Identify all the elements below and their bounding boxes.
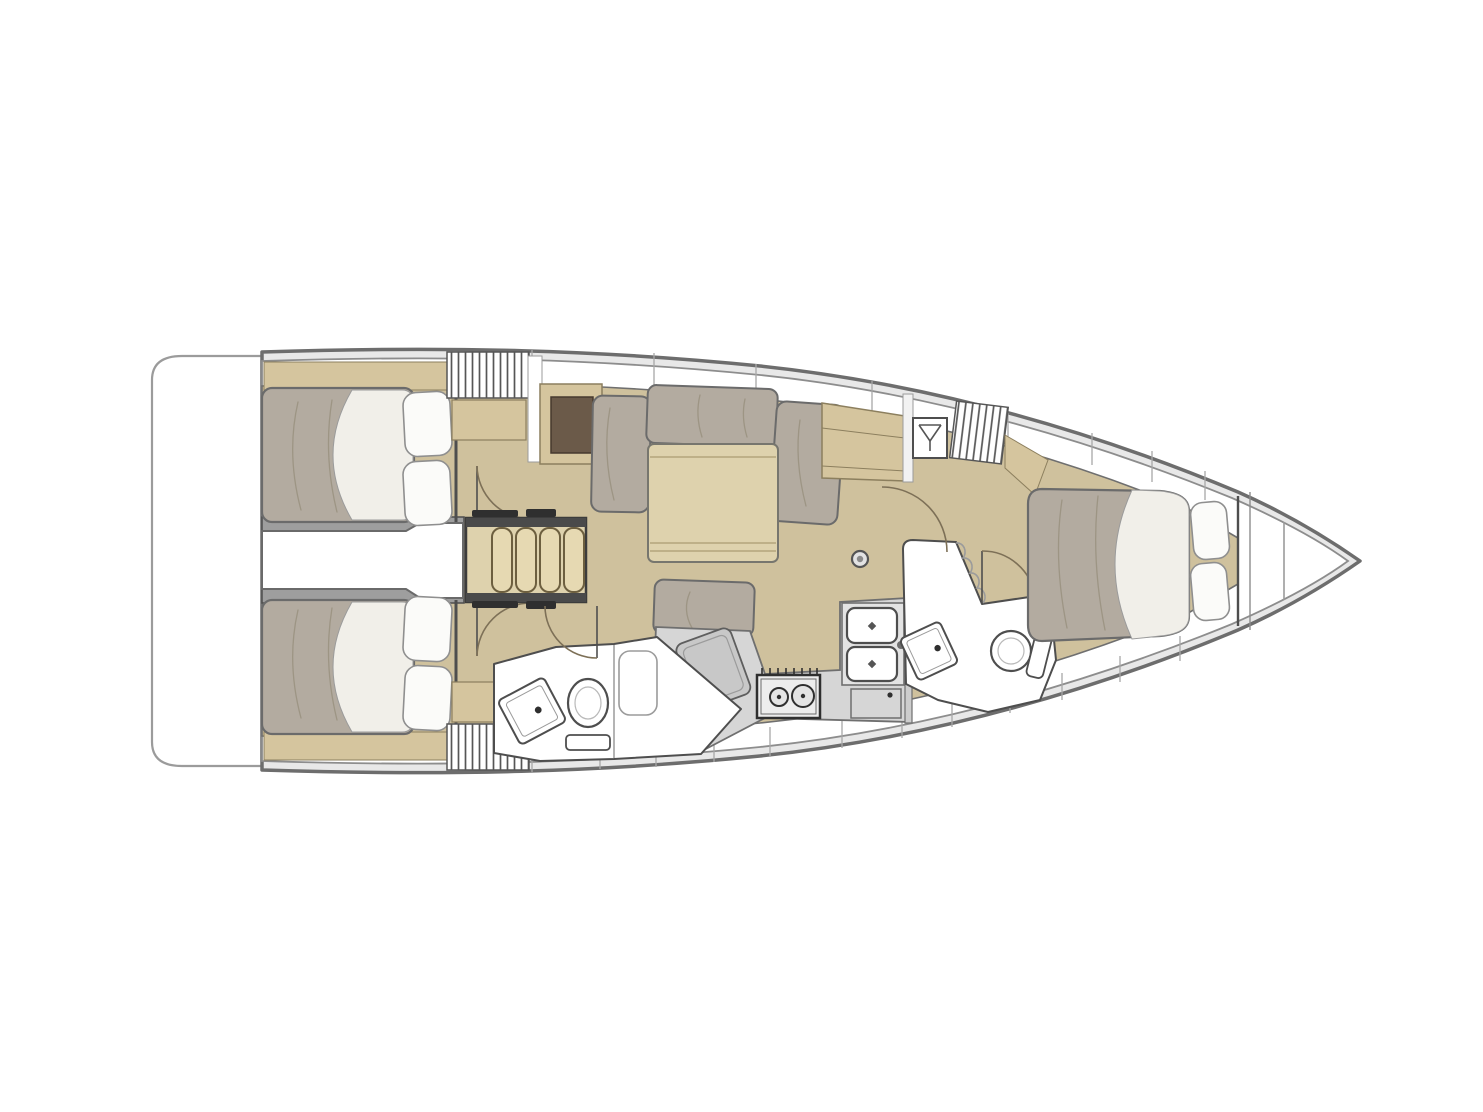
pillow bbox=[402, 665, 452, 731]
side-cabinet bbox=[822, 403, 905, 481]
locker-slats-icon bbox=[447, 352, 529, 398]
step bbox=[564, 528, 584, 592]
settee-chaise-left bbox=[591, 396, 651, 513]
locker-door bbox=[851, 689, 901, 718]
pillow bbox=[402, 391, 452, 457]
salon-table bbox=[648, 444, 778, 562]
aft-cabin-starboard bbox=[262, 596, 531, 770]
mast-step-icon-center bbox=[857, 556, 863, 562]
toilet-bowl bbox=[991, 631, 1031, 671]
pillow bbox=[402, 460, 452, 526]
headboard-shelf bbox=[264, 732, 454, 760]
step bbox=[540, 528, 560, 592]
settee-back bbox=[646, 385, 778, 448]
sheet-fold bbox=[1115, 490, 1189, 639]
burner-center bbox=[777, 695, 781, 699]
steps-rail-top bbox=[466, 518, 586, 527]
toilet-icon bbox=[566, 679, 610, 750]
pillow bbox=[1190, 501, 1231, 561]
sheet-fold bbox=[333, 602, 413, 732]
stove-icon bbox=[757, 668, 820, 718]
toilet-bowl bbox=[568, 679, 608, 727]
headboard-shelf bbox=[264, 362, 454, 390]
latch-hardware bbox=[526, 509, 556, 517]
engine-box bbox=[262, 523, 463, 598]
swim-platform bbox=[152, 356, 264, 766]
latch-hardware bbox=[526, 601, 556, 609]
double-sink-icon bbox=[842, 603, 905, 685]
sideboard-hatch bbox=[551, 397, 593, 453]
latch-hardware bbox=[472, 510, 518, 517]
locker-slats-forward bbox=[950, 401, 1009, 464]
hanging-locker bbox=[913, 418, 947, 458]
pillow bbox=[1190, 562, 1231, 622]
engine-compartment bbox=[262, 517, 464, 603]
steps-rail-bottom bbox=[466, 593, 586, 602]
latch-hardware bbox=[472, 601, 518, 608]
step bbox=[516, 528, 536, 592]
companionway-steps bbox=[466, 509, 586, 609]
floor-plan-page bbox=[0, 0, 1483, 1112]
burner-center bbox=[801, 694, 805, 698]
aft-cabin-port bbox=[262, 352, 531, 526]
partition-wall bbox=[903, 394, 913, 482]
pillow bbox=[402, 596, 452, 662]
sheet-fold bbox=[333, 390, 413, 520]
locker-slats-icon bbox=[950, 401, 1009, 464]
toilet-tank bbox=[566, 735, 610, 750]
storage-shelf bbox=[452, 400, 526, 440]
step bbox=[492, 528, 512, 592]
locker-knob bbox=[887, 692, 892, 697]
floor-plan bbox=[0, 0, 1483, 1112]
